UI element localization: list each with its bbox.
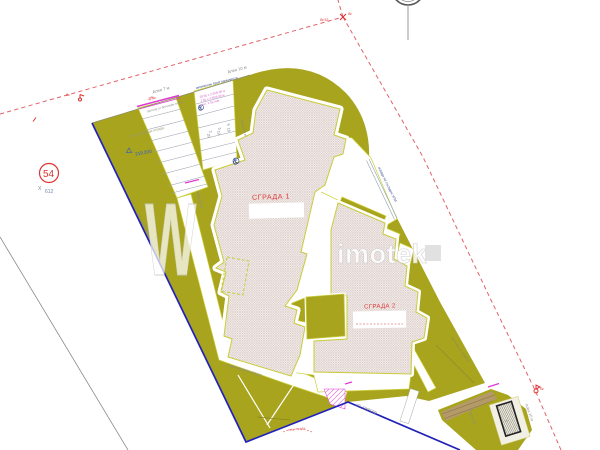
svg-text:СГРАДА 1: СГРАДА 1 bbox=[252, 193, 290, 201]
svg-text:бк: бк bbox=[66, 93, 70, 97]
svg-text:СГРАДА 2: СГРАДА 2 bbox=[364, 303, 396, 310]
svg-text:54: 54 bbox=[43, 169, 55, 180]
svg-text:бк: бк bbox=[540, 387, 544, 391]
svg-text:612: 612 bbox=[45, 189, 54, 195]
svg-text:бк 52: бк 52 bbox=[320, 18, 328, 22]
svg-text:W: W bbox=[145, 183, 197, 298]
svg-text:бк: бк bbox=[348, 12, 352, 16]
svg-text:imotek: imotek bbox=[337, 239, 428, 269]
